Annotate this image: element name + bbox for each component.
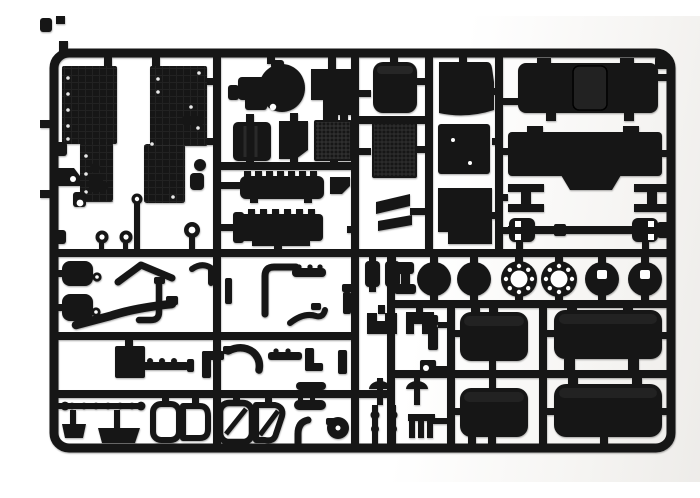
storage-box-lower — [438, 188, 492, 244]
mirror-brackets — [420, 315, 438, 378]
equipment-box — [279, 121, 308, 159]
hub-cap-disc — [585, 262, 619, 296]
sprue-drawing — [40, 16, 700, 482]
seat-back — [439, 62, 494, 115]
turbocharger — [326, 417, 349, 439]
engine-block — [228, 60, 305, 112]
cab-rear-panel — [508, 126, 662, 190]
brake-drum-disc — [417, 262, 451, 296]
sprue-photo — [40, 16, 700, 482]
air-horns — [369, 381, 428, 405]
brake-chambers — [62, 261, 102, 321]
equipment-box-row — [233, 113, 352, 167]
brake-drum-disc — [457, 262, 491, 296]
ribbed-chassis-member-upper — [240, 171, 350, 203]
fuel-tank-long-upper — [554, 304, 662, 375]
sprue — [40, 16, 672, 449]
radiator-grille — [372, 122, 417, 178]
step-plates — [376, 194, 412, 231]
air-tank-cylinders — [365, 261, 400, 292]
axle-beam-left — [508, 184, 544, 212]
fuel-tank-long-lower — [554, 384, 662, 437]
hub-flange-with-bolt-holes — [501, 261, 537, 297]
hub-flange-with-bolt-holes — [541, 261, 577, 297]
storage-box-upper — [438, 124, 490, 174]
roof-panel — [518, 58, 658, 121]
fuel-tank-small-lower — [460, 388, 528, 447]
mud-flaps — [62, 424, 140, 443]
gear-levers — [371, 405, 398, 445]
tie-rod — [61, 402, 146, 411]
ribbed-chassis-member-lower — [233, 209, 323, 254]
equipment-box — [233, 122, 271, 161]
step-comb — [408, 414, 435, 438]
fender-outlines — [153, 403, 282, 442]
driveshaft — [508, 218, 672, 242]
sunroof-hatch — [573, 66, 607, 110]
end-bracket — [330, 177, 350, 194]
hub-cap-disc — [628, 262, 662, 296]
axle-beam-right — [634, 184, 670, 212]
seat-cushion — [373, 62, 417, 113]
fuel-tank-small-upper — [460, 306, 528, 361]
chassis-brackets-bottom — [202, 348, 347, 378]
wheel-hub-row — [394, 261, 662, 297]
